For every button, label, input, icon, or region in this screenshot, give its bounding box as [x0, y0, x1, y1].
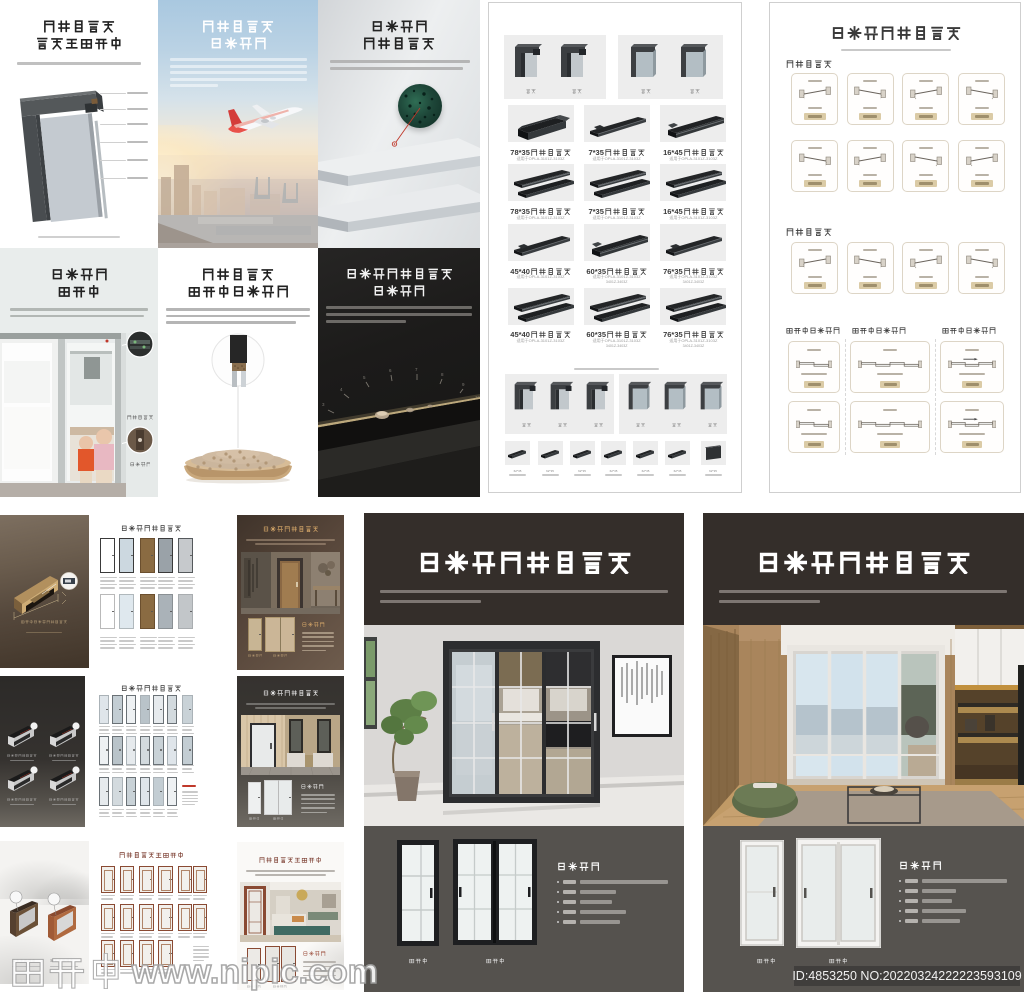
svg-text:6: 6: [389, 368, 392, 373]
svg-text:3: 3: [322, 402, 325, 407]
svg-text:5: 5: [363, 375, 366, 380]
svg-text:7: 7: [415, 367, 418, 372]
svg-text:9: 9: [462, 382, 465, 387]
svg-text:4: 4: [340, 387, 343, 392]
svg-text:8: 8: [441, 372, 444, 377]
